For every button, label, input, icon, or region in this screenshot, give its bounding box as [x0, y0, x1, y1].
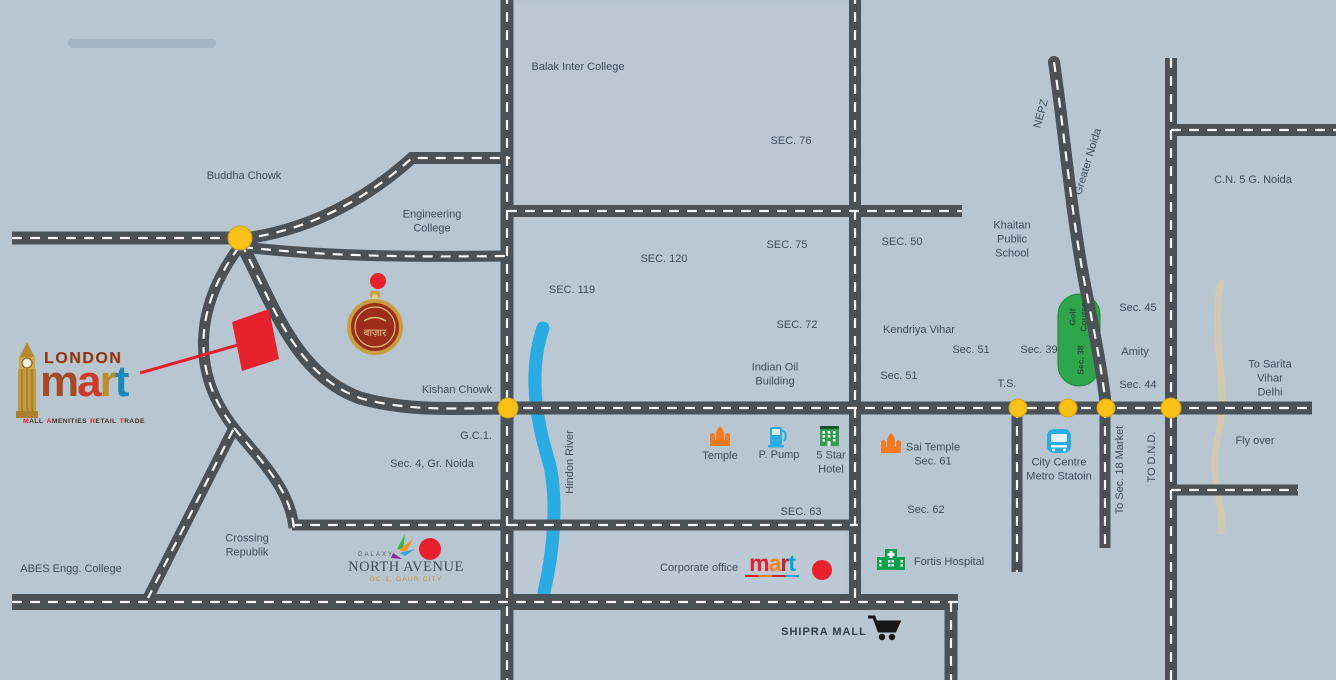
sarita-label: To Sarita Vihar Delhi: [1237, 358, 1303, 399]
sec39-label: Sec. 39: [1020, 344, 1057, 358]
to-dnd-label: TO D.N.D.: [1146, 431, 1160, 482]
cn5-label: C.N. 5 G. Noida: [1214, 174, 1292, 188]
gc1-label: G.C.1.: [460, 430, 492, 444]
hindon-river-label: Hindon River: [564, 430, 578, 494]
engineering-college-label: Engineering College: [403, 208, 462, 236]
khaitan-label: Khaitan Public School: [993, 219, 1030, 260]
crossing-label: Crossing Republik: [225, 532, 268, 560]
golf-sec-label: Sec. 38: [1076, 345, 1087, 374]
kishan-chowk-label: Kishan Chowk: [422, 384, 492, 398]
buddha-chowk-label: Buddha Chowk: [207, 170, 282, 184]
fly-over-label: Fly over: [1235, 435, 1274, 449]
sec72-label: SEC. 72: [777, 319, 818, 333]
sec119-label: SEC. 119: [549, 284, 595, 298]
kendriya-vihar-label: Kendriya Vihar: [883, 324, 955, 338]
sec4-label: Sec. 4, Gr. Noida: [390, 458, 474, 472]
sec75-label: SEC. 75: [767, 239, 808, 253]
balak-label: Balak Inter College: [532, 61, 625, 75]
sec50-label: SEC. 50: [882, 236, 923, 250]
sec45-label: Sec. 45: [1119, 302, 1156, 316]
abes-label: ABES Engg. College: [20, 563, 122, 577]
sec51a-label: Sec. 51: [952, 344, 989, 358]
five-star-label: 5 Star Hotel: [816, 449, 845, 477]
nepz-label: NEPZ: [1032, 98, 1053, 130]
sec120-label: SEC. 120: [640, 253, 687, 267]
to-sec18-label: To Sec. 18 Market: [1114, 426, 1128, 515]
golf-course-label: Golf Course: [1067, 302, 1088, 331]
sec44-label: Sec. 44: [1119, 379, 1156, 393]
ts-label: T.S.: [998, 378, 1017, 392]
greater-noida-label: Greater Noida: [1072, 127, 1105, 197]
sec62-label: Sec. 62: [907, 504, 944, 518]
sai-temple-label: Sai Temple Sec. 61: [906, 441, 960, 469]
p-pump-label: P. Pump: [759, 449, 800, 463]
shipra-label: SHIPRA MALL: [781, 626, 867, 640]
amity-label: Amity: [1121, 346, 1149, 360]
fortis-label: Fortis Hospital: [914, 556, 984, 570]
temple-label: Temple: [702, 450, 737, 464]
london-mart-location-map: बाज़ार: [0, 0, 1336, 680]
sec63-label: SEC. 63: [781, 506, 822, 520]
indian-oil-label: Indian Oil Building: [752, 361, 798, 389]
map-labels-layer: Balak Inter CollegeSEC. 76Buddha ChowkEn…: [0, 0, 1336, 680]
city-centre-label: City Centre Metro Statoin: [1026, 456, 1091, 484]
sec76-label: SEC. 76: [771, 135, 812, 149]
sec51b-label: Sec. 51: [880, 370, 917, 384]
